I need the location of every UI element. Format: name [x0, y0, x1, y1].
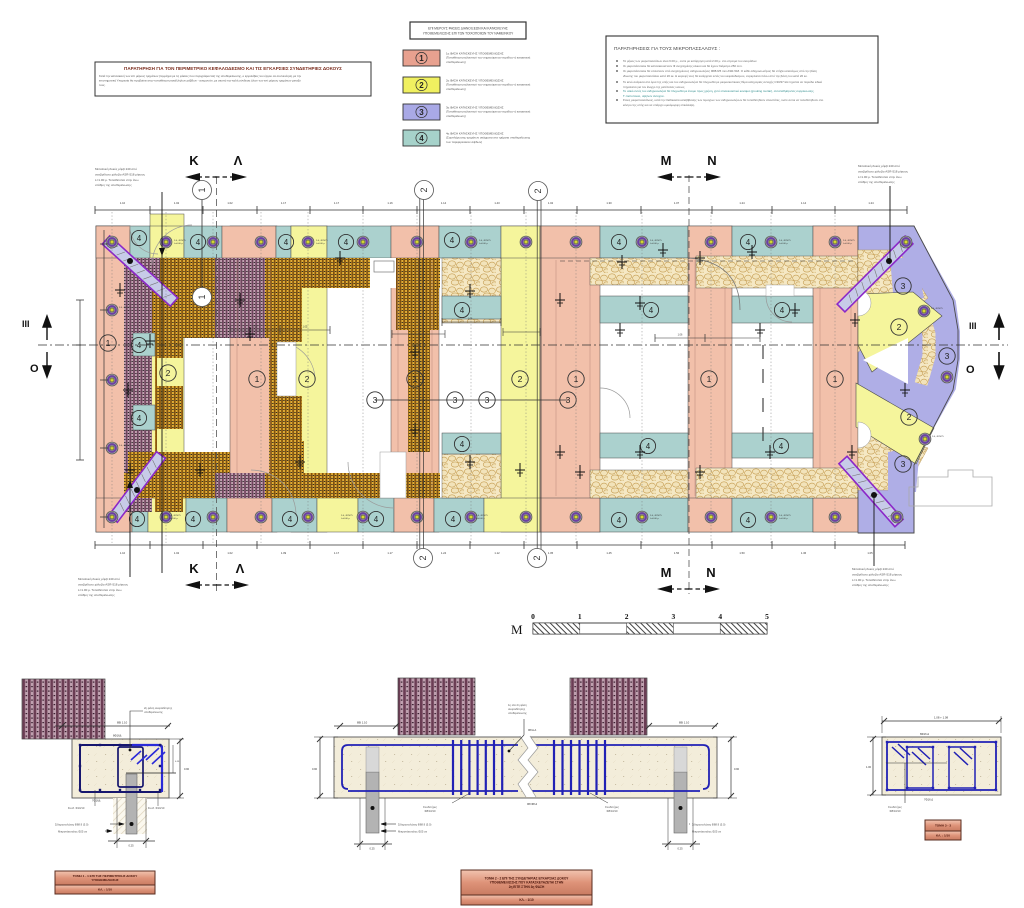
svg-text:1.30: 1.30: [606, 201, 612, 205]
svg-text:5: 5: [765, 612, 769, 621]
svg-text:3: 3: [672, 612, 676, 621]
svg-text:2-4, Φ25/75: 2-4, Φ25/75: [174, 239, 186, 242]
svg-text:1.14: 1.14: [801, 201, 807, 205]
svg-text:υποθεμελίωση): υποθεμελίωση): [446, 60, 466, 64]
svg-text:3: 3: [901, 281, 906, 291]
svg-text:ΚΛ. : 1/10: ΚΛ. : 1/10: [519, 898, 534, 902]
svg-text:Συνδ. Φ10/10: Συνδ. Φ10/10: [68, 806, 85, 810]
svg-text:4: 4: [137, 414, 142, 423]
svg-text:1.43: 1.43: [494, 201, 500, 205]
svg-text:4: 4: [617, 238, 622, 247]
svg-text:7Φ16Δ: 7Φ16Δ: [92, 799, 101, 803]
svg-text:2-4, Φ25/75: 2-4, Φ25/75: [779, 514, 791, 517]
svg-text:ΥΠΟΘΕΜΕΛΙΩΣΗΣ: ΥΠΟΘΕΜΕΛΙΩΣΗΣ: [91, 878, 118, 882]
svg-text:L=1.00 μ. Τοποθετείται στην άν: L=1.00 μ. Τοποθετείται στην άνω: [95, 178, 139, 182]
svg-text:Μεταλλική δοκός μήκβ 240 από: Μεταλλική δοκός μήκβ 240 από: [852, 567, 894, 571]
svg-text:K: K: [189, 561, 199, 576]
svg-text:4: 4: [419, 134, 424, 143]
svg-text:ιδίωσης του μικροπασσάλου κατά: ιδίωσης του μικροπασσάλου κατά 20 εκ. Η …: [623, 74, 808, 78]
svg-text:Τα μήκος των μικροπασσάλων είν: Τα μήκος των μικροπασσάλων είναι 6.00 μ.…: [623, 59, 757, 63]
svg-text:1: 1: [578, 612, 582, 621]
svg-text:4: 4: [135, 515, 140, 524]
svg-text:αναβρίδωτο χάλυβα ASR-518 μήκο: αναβρίδωτο χάλυβα ASR-518 μήκους: [95, 172, 145, 176]
svg-text:Μ: Μ: [511, 622, 523, 637]
svg-text:1.24: 1.24: [739, 201, 745, 205]
svg-text:1.56: 1.56: [674, 551, 680, 555]
svg-text:ΚΛ. : 1/10: ΚΛ. : 1/10: [936, 834, 950, 838]
svg-text:0.90: 0.90: [734, 767, 740, 771]
svg-text:Συνδετήρες: Συνδετήρες: [888, 805, 902, 809]
svg-text:4: 4: [617, 516, 622, 525]
svg-text:4: 4: [196, 238, 201, 247]
svg-text:Συνδ. Φ10/10: Συνδ. Φ10/10: [148, 806, 165, 810]
svg-text:4: 4: [344, 238, 349, 247]
svg-text:Φ8 Φ8 Δ: Φ8 Φ8 Δ: [527, 802, 537, 806]
svg-text:Σιδηροσωλήνας Φ88.9 (5.0): Σιδηροσωλήνας Φ88.9 (5.0): [692, 823, 726, 827]
svg-text:σκυροδέτησης: σκυροδέτησης: [508, 707, 526, 711]
svg-text:4: 4: [288, 515, 293, 524]
svg-text:1.06: 1.06: [678, 334, 683, 337]
svg-text:3: 3: [901, 459, 906, 469]
svg-text:κέντρο της οπής και να υπάρχει: κέντρο της οπής και να υπάρχει ομοιόμορφ…: [623, 103, 695, 107]
svg-text:1.09: 1.09: [281, 551, 287, 555]
svg-text:4: 4: [649, 306, 654, 315]
svg-text:Κατά την κατασκευή των επί μέ: Κατά την κατασκευή των επί μέρους τμημάτ…: [99, 74, 302, 78]
svg-text:Σιδηροσωλήνας Φ88.9 (5.0): Σιδηροσωλήνας Φ88.9 (5.0): [398, 823, 432, 827]
svg-text:4: 4: [646, 442, 651, 451]
svg-text:L=6.00 μ: L=6.00 μ: [341, 518, 350, 520]
svg-text:υποθεμελίωσης: υποθεμελίωσης: [508, 711, 527, 715]
svg-text:2-4, Φ25/75: 2-4, Φ25/75: [119, 444, 131, 447]
svg-text:2-4, Φ25/75: 2-4, Φ25/75: [476, 514, 488, 517]
svg-text:1.10: 1.10: [120, 551, 126, 555]
svg-text:K: K: [189, 153, 199, 168]
svg-text:2: 2: [533, 188, 543, 193]
svg-text:2-4, Φ25/75: 2-4, Φ25/75: [169, 514, 181, 517]
svg-text:2-4, Φ25/75: 2-4, Φ25/75: [779, 239, 791, 242]
svg-text:4: 4: [718, 612, 722, 621]
svg-text:3: 3: [453, 395, 458, 405]
svg-text:υποθεμελίωση): υποθεμελίωση): [446, 114, 466, 118]
svg-text:στάθμη της υποθεμελίωσης: στάθμη της υποθεμελίωσης: [852, 583, 889, 587]
svg-text:1.17: 1.17: [334, 201, 340, 205]
svg-text:Το υλικό εντός του σιδηροσωλήν: Το υλικό εντός του σιδηροσωλήνα θα πληρω…: [623, 89, 815, 93]
svg-text:1.07: 1.07: [674, 201, 680, 205]
svg-text:0: 0: [531, 612, 535, 621]
svg-text:στάθμη της υποθεμελίωσης: στάθμη της υποθεμελίωσης: [78, 593, 115, 597]
svg-text:O: O: [966, 364, 975, 376]
svg-text:αναβρίδωτο χάλυβα ASR-518 μήκο: αναβρίδωτο χάλυβα ASR-518 μήκους: [78, 582, 128, 586]
svg-text:1.08 + 1.08: 1.08 + 1.08: [934, 716, 949, 720]
svg-text:2-4, Φ25/75: 2-4, Φ25/75: [932, 435, 944, 438]
svg-text:1.45: 1.45: [606, 551, 612, 555]
svg-text:Λ: Λ: [234, 153, 243, 168]
svg-text:ΠΑΡΑΤΗΡΗΣΗ ΓΙΑ ΤΟΝ ΠΕΡΙΜΕΤΡΙΚΟ: ΠΑΡΑΤΗΡΗΣΗ ΓΙΑ ΤΟΝ ΠΕΡΙΜΕΤΡΙΚΟ ΚΕΦΑΛΟΔΕΣ…: [124, 66, 342, 71]
svg-text:2-4, Φ25/75: 2-4, Φ25/75: [931, 307, 943, 310]
svg-text:2: 2: [305, 374, 310, 384]
svg-text:ΦΒ 1.10: ΦΒ 1.10: [679, 721, 690, 725]
svg-text:1.24: 1.24: [868, 201, 874, 205]
svg-text:M: M: [661, 565, 672, 580]
svg-text:7Φ16 Δ: 7Φ16 Δ: [924, 798, 933, 802]
svg-text:των περιφερειακών αψίδων): των περιφερειακών αψίδων): [446, 140, 482, 144]
svg-text:Οι μικροπάσσαλοι θα οπλιστούν: Οι μικροπάσσαλοι θα οπλιστούν από ανηρτη…: [623, 69, 817, 73]
svg-text:ΠΑΡΑΤΗΡΗΣΕΙΣ ΓΙΑ ΤΟΥΣ ΜΙΚΡΟΠΑΣ: ΠΑΡΑΤΗΡΗΣΕΙΣ ΓΙΑ ΤΟΥΣ ΜΙΚΡΟΠΑΣΣΑΛΟΥΣ :: [614, 46, 720, 52]
svg-text:2: 2: [625, 612, 629, 621]
svg-text:3: 3: [945, 351, 950, 361]
svg-text:4: 4: [779, 442, 784, 451]
svg-text:8Φ16 Δ: 8Φ16 Δ: [920, 732, 929, 736]
svg-text:O: O: [30, 363, 39, 375]
svg-text:L=6.00 μ: L=6.00 μ: [476, 518, 485, 520]
svg-text:1: 1: [255, 374, 260, 384]
svg-text:Σιδηροσωλήνας Φ88.9 (5.0): Σιδηροσωλήνας Φ88.9 (5.0): [55, 823, 89, 827]
svg-text:0.90: 0.90: [312, 767, 318, 771]
svg-text:1.02: 1.02: [174, 551, 180, 555]
svg-text:1.17: 1.17: [387, 551, 393, 555]
svg-text:τους.: τους.: [99, 83, 106, 87]
svg-text:M: M: [661, 153, 672, 168]
svg-text:Λ: Λ: [236, 561, 245, 576]
svg-text:4: 4: [191, 515, 196, 524]
svg-text:Φ8 Δ.Α: Φ8 Δ.Α: [528, 728, 537, 732]
svg-text:1.02: 1.02: [174, 201, 180, 205]
svg-text:0.25: 0.25: [369, 847, 375, 851]
svg-text:Φ8/10/10: Φ8/10/10: [889, 809, 901, 813]
svg-text:L=6.00 μ: L=6.00 μ: [174, 243, 183, 245]
svg-text:L=1.00 μ. Τοποθετείται στην άν: L=1.00 μ. Τοποθετείται στην άνω: [852, 578, 896, 582]
svg-text:1.05: 1.05: [253, 326, 258, 329]
svg-text:N: N: [707, 153, 716, 168]
svg-text:N: N: [706, 565, 715, 580]
svg-text:2: 2: [907, 412, 912, 422]
svg-text:1.50: 1.50: [739, 551, 745, 555]
svg-text:Μικροπάσσαλος Φ25 σε: Μικροπάσσαλος Φ25 σε: [58, 830, 88, 834]
svg-text:L=6.00 μ: L=6.00 μ: [479, 243, 488, 245]
svg-text:1.10: 1.10: [120, 201, 126, 205]
svg-text:στάθμη της υποθεμελίωσης: στάθμη της υποθεμελίωσης: [95, 183, 132, 187]
svg-text:1: 1: [106, 338, 111, 348]
svg-text:επιστημονική Υπηρεσία θα προβα: επιστημονική Υπηρεσία θα προβαίνει στην …: [99, 79, 301, 83]
svg-text:Μικροπάσσαλος Φ25 σε: Μικροπάσσαλος Φ25 σε: [398, 830, 428, 834]
svg-text:2-4, Φ25/75: 2-4, Φ25/75: [119, 306, 131, 309]
svg-text:Οι μικροπάσσαλοι θα κατασκευασ: Οι μικροπάσσαλοι θα κατασκευαστούν Φ ανη…: [623, 64, 743, 68]
svg-text:1.36: 1.36: [801, 551, 807, 555]
svg-text:2: 2: [532, 555, 542, 560]
svg-text:L=6.00 μ: L=6.00 μ: [650, 243, 659, 245]
svg-text:Μεταλλική δοκός μήκβ 240 από: Μεταλλική δοκός μήκβ 240 από: [78, 577, 120, 581]
svg-text:1.02: 1.02: [227, 551, 233, 555]
svg-text:1.24: 1.24: [441, 551, 447, 555]
svg-text:2: 2: [419, 81, 424, 90]
svg-text:υποθεμελίωσης: υποθεμελίωσης: [144, 710, 163, 714]
svg-text:1: 1: [419, 54, 424, 63]
svg-text:L=1.00 μ. Τοποθετείται στην άν: L=1.00 μ. Τοποθετείται στην άνω: [78, 588, 122, 592]
svg-text:2η ΕΙΤΕ ΣΤΗΝ 3η ΦΑΣΗ: 2η ΕΙΤΕ ΣΤΗΝ 3η ΦΑΣΗ: [509, 885, 545, 889]
svg-text:2: 2: [518, 374, 523, 384]
svg-text:1.05: 1.05: [548, 551, 554, 555]
svg-text:4: 4: [746, 516, 751, 525]
svg-text:4: 4: [460, 440, 465, 449]
svg-text:1.06: 1.06: [468, 318, 473, 321]
svg-text:2-4, Φ25/75: 2-4, Φ25/75: [341, 514, 353, 517]
svg-text:1η είτε 2η φάση: 1η είτε 2η φάση: [508, 703, 527, 707]
svg-text:0.25: 0.25: [677, 847, 683, 851]
svg-text:3: 3: [485, 395, 490, 405]
svg-text:ΦΒ 1.10: ΦΒ 1.10: [117, 721, 128, 725]
svg-text:L=6.00 μ: L=6.00 μ: [650, 518, 659, 520]
svg-text:L=6.00 μ: L=6.00 μ: [779, 518, 788, 520]
svg-text:4: 4: [780, 306, 785, 315]
svg-text:4: 4: [746, 238, 751, 247]
svg-text:4: 4: [284, 238, 289, 247]
svg-text:2-4, Φ25/75: 2-4, Φ25/75: [650, 514, 662, 517]
svg-text:2-4, Φ25/75: 2-4, Φ25/75: [316, 239, 328, 242]
svg-text:ΥΠΟΘΕΜΕΛΙΩΣΗΣ ΕΠΙ ΤΩΝ ΤΟΙΧΟΠΟ: ΥΠΟΘΕΜΕΛΙΩΣΗΣ ΕΠΙ ΤΩΝ ΤΟΙΧΟΠΟΙΙΩΝ ΤΟΥ ΝΑ…: [423, 32, 514, 36]
svg-text:υποθεμελίωση): υποθεμελίωση): [446, 87, 466, 91]
svg-text:III: III: [969, 321, 977, 331]
svg-text:Το κενό ανάμεσα στα όρια της ο: Το κενό ανάμεσα στα όρια της οπής και το…: [623, 80, 822, 84]
svg-text:4: 4: [460, 306, 465, 315]
svg-text:1.12: 1.12: [494, 551, 500, 555]
svg-text:2: 2: [419, 187, 429, 192]
svg-text:1: 1: [197, 294, 207, 299]
svg-text:L=6.00 μ: L=6.00 μ: [843, 243, 852, 245]
svg-text:2: 2: [418, 555, 428, 560]
svg-text:3: 3: [419, 108, 424, 117]
svg-text:4: 4: [137, 234, 142, 243]
svg-text:ΚΛ. : 1/10: ΚΛ. : 1/10: [98, 888, 112, 892]
svg-text:ΕΠΙ ΜΕΡΟΥΣ ΦΑΣΕΙΣ ΔΙΑΝΟΙΞΕΩΝ: ΕΠΙ ΜΕΡΟΥΣ ΦΑΣΕΙΣ ΔΙΑΝΟΙΞΕΩΝ ΚΑΙ ΚΑΤΑΣΚΕ…: [428, 27, 508, 31]
svg-text:1.17: 1.17: [334, 551, 340, 555]
svg-text:1.00: 1.00: [866, 765, 872, 769]
svg-text:Στους μικροπασσάλους, κατά την: Στους μικροπασσάλους, κατά την διαδικασί…: [623, 98, 824, 102]
svg-text:4: 4: [450, 236, 455, 245]
svg-text:1.02: 1.02: [227, 201, 233, 205]
svg-text:0.90: 0.90: [184, 767, 190, 771]
svg-text:2: 2: [897, 322, 902, 332]
svg-text:L=6.00 μ: L=6.00 μ: [169, 518, 178, 520]
svg-text:στάθμη της υποθεμελίωσης: στάθμη της υποθεμελίωσης: [858, 180, 895, 184]
svg-text:0.25: 0.25: [128, 844, 134, 848]
svg-text:ΤΟΜΗ 3 - 3: ΤΟΜΗ 3 - 3: [935, 824, 951, 828]
svg-text:4: 4: [374, 515, 379, 524]
svg-text:L=1.00 μ. Τοποθετείται στην άν: L=1.00 μ. Τοποθετείται στην άνω: [858, 175, 902, 179]
svg-text:ΦΒ 1.10: ΦΒ 1.10: [357, 721, 368, 725]
svg-text:Φ8/10/10: Φ8/10/10: [424, 809, 436, 813]
svg-text:αναβρίδωτο χάλυβα ASR-518 μήκο: αναβρίδωτο χάλυβα ASR-518 μήκους: [858, 169, 908, 173]
svg-text:3: 3: [373, 395, 378, 405]
svg-text:4: 4: [137, 341, 142, 350]
svg-text:8Φ16Δ: 8Φ16Δ: [113, 734, 122, 738]
svg-text:III: III: [22, 319, 30, 329]
svg-text:2-4, Φ25/75: 2-4, Φ25/75: [479, 239, 491, 242]
svg-text:Μικροπάσσαλος Φ25 σε: Μικροπάσσαλος Φ25 σε: [692, 830, 722, 834]
svg-text:1.05: 1.05: [867, 551, 873, 555]
svg-text:2η φάση σκυροδέτησης: 2η φάση σκυροδέτησης: [144, 706, 173, 710]
svg-text:Συνδετήρες: Συνδετήρες: [605, 805, 619, 809]
svg-text:1.05: 1.05: [303, 326, 308, 329]
svg-text:1.16: 1.16: [387, 201, 393, 205]
svg-text:αναβρίδωτο χάλυβα ASR-518 μήκο: αναβρίδωτο χάλυβα ASR-518 μήκους: [852, 572, 902, 576]
svg-text:3: 3: [566, 395, 571, 405]
svg-text:4: 4: [451, 515, 456, 524]
svg-text:1: 1: [197, 187, 207, 192]
svg-text:2-4, Φ25/75: 2-4, Φ25/75: [843, 239, 855, 242]
svg-text:1.14: 1.14: [441, 201, 447, 205]
svg-text:2-4, Φ25/75: 2-4, Φ25/75: [650, 239, 662, 242]
svg-text:Μεταλλική δοκός μήκβ 240 από: Μεταλλική δοκός μήκβ 240 από: [95, 167, 137, 171]
svg-text:L=6.00 μ: L=6.00 μ: [316, 243, 325, 245]
svg-text:2: 2: [166, 368, 171, 378]
svg-text:1.02: 1.02: [548, 201, 554, 205]
svg-text:Μεταλλική δοκός μήκβ 240 από: Μεταλλική δοκός μήκβ 240 από: [858, 164, 900, 168]
svg-text:L=6.00 μ: L=6.00 μ: [779, 243, 788, 245]
svg-text:Φ8/10/10: Φ8/10/10: [606, 809, 618, 813]
svg-text:Συνδετήρες: Συνδετήρες: [423, 805, 437, 809]
svg-text:1.17: 1.17: [281, 201, 287, 205]
